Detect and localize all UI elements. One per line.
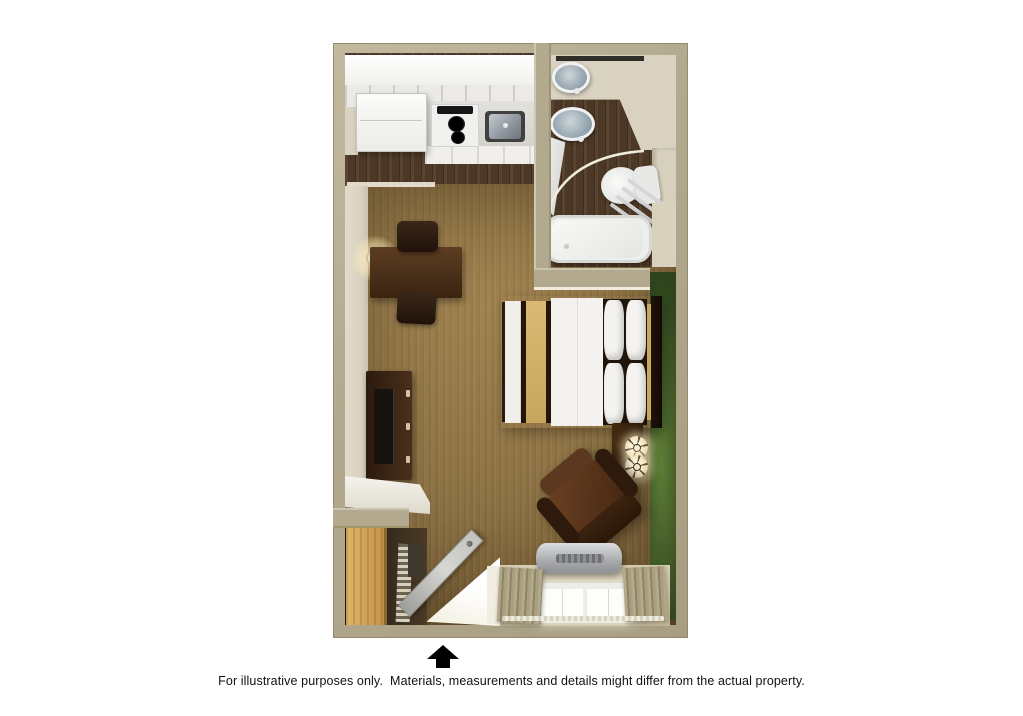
refrigerator bbox=[356, 93, 427, 152]
dresser-handle bbox=[406, 423, 410, 430]
stove-burner bbox=[451, 131, 465, 144]
window-pane bbox=[587, 589, 629, 619]
dresser-handle bbox=[406, 456, 410, 463]
refrigerator-door-line bbox=[360, 120, 422, 121]
desk-table bbox=[370, 247, 462, 298]
desk-chair bbox=[397, 221, 438, 252]
left-wall-face bbox=[345, 186, 368, 482]
bed-runner bbox=[526, 301, 546, 423]
curtain-rod bbox=[502, 616, 664, 621]
kitchen-faucet bbox=[503, 123, 508, 128]
stove-burner bbox=[448, 116, 465, 132]
bathtub-drain bbox=[564, 244, 569, 249]
up-arrow-icon-stem bbox=[436, 657, 450, 668]
floor-plan-page: For illustrative purposes only. Material… bbox=[0, 0, 1023, 716]
luggage-item bbox=[408, 544, 423, 577]
vanity-mirror bbox=[556, 56, 644, 61]
bathroom-faucet bbox=[574, 88, 580, 94]
pillow bbox=[626, 300, 646, 360]
pillow bbox=[626, 363, 646, 424]
bed-duvet bbox=[551, 298, 603, 426]
stove-control-panel bbox=[437, 106, 473, 114]
closet-door bbox=[346, 528, 387, 625]
television bbox=[374, 389, 394, 464]
upper-cabinets bbox=[345, 55, 534, 85]
closet-wall-stub bbox=[333, 508, 409, 528]
bathroom-sink bbox=[550, 107, 595, 141]
bathtub-deck bbox=[652, 203, 676, 267]
bed bbox=[501, 296, 662, 428]
kitchen-bathroom-wall bbox=[534, 43, 551, 270]
pillow bbox=[604, 363, 624, 424]
bed-foot-blanket bbox=[505, 301, 521, 423]
bathtub-basin bbox=[551, 220, 643, 258]
dresser-handle bbox=[406, 390, 410, 397]
ptac-vent bbox=[556, 554, 604, 563]
pillow bbox=[604, 300, 624, 360]
curtain bbox=[623, 566, 668, 622]
disclaimer-caption: For illustrative purposes only. Material… bbox=[0, 674, 1023, 688]
bathroom-bottom-wall bbox=[534, 268, 650, 290]
window-pane bbox=[541, 589, 583, 619]
headboard bbox=[651, 296, 662, 428]
bathroom-sink bbox=[552, 62, 590, 93]
pillow-area bbox=[603, 299, 647, 425]
base-cabinets bbox=[425, 146, 534, 164]
desk-chair bbox=[396, 292, 437, 325]
